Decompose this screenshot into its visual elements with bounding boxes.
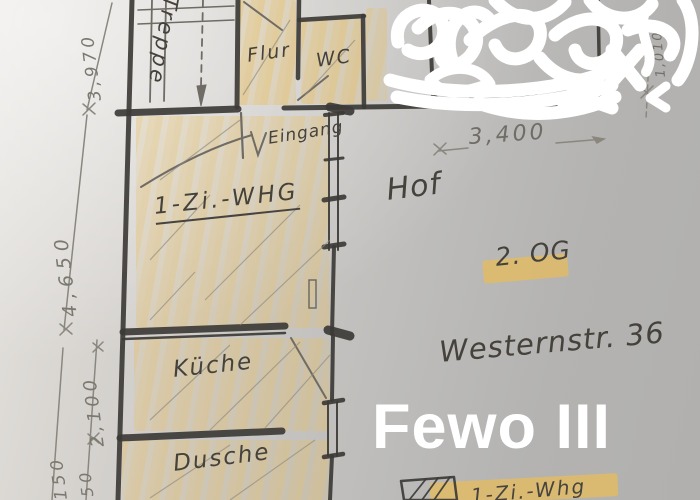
floorplan-photo: Treppe Flur WC Eingang 1-Zi.-WHG Hof 2. … [0,0,700,500]
overlay-title: Fewo III [372,396,611,459]
